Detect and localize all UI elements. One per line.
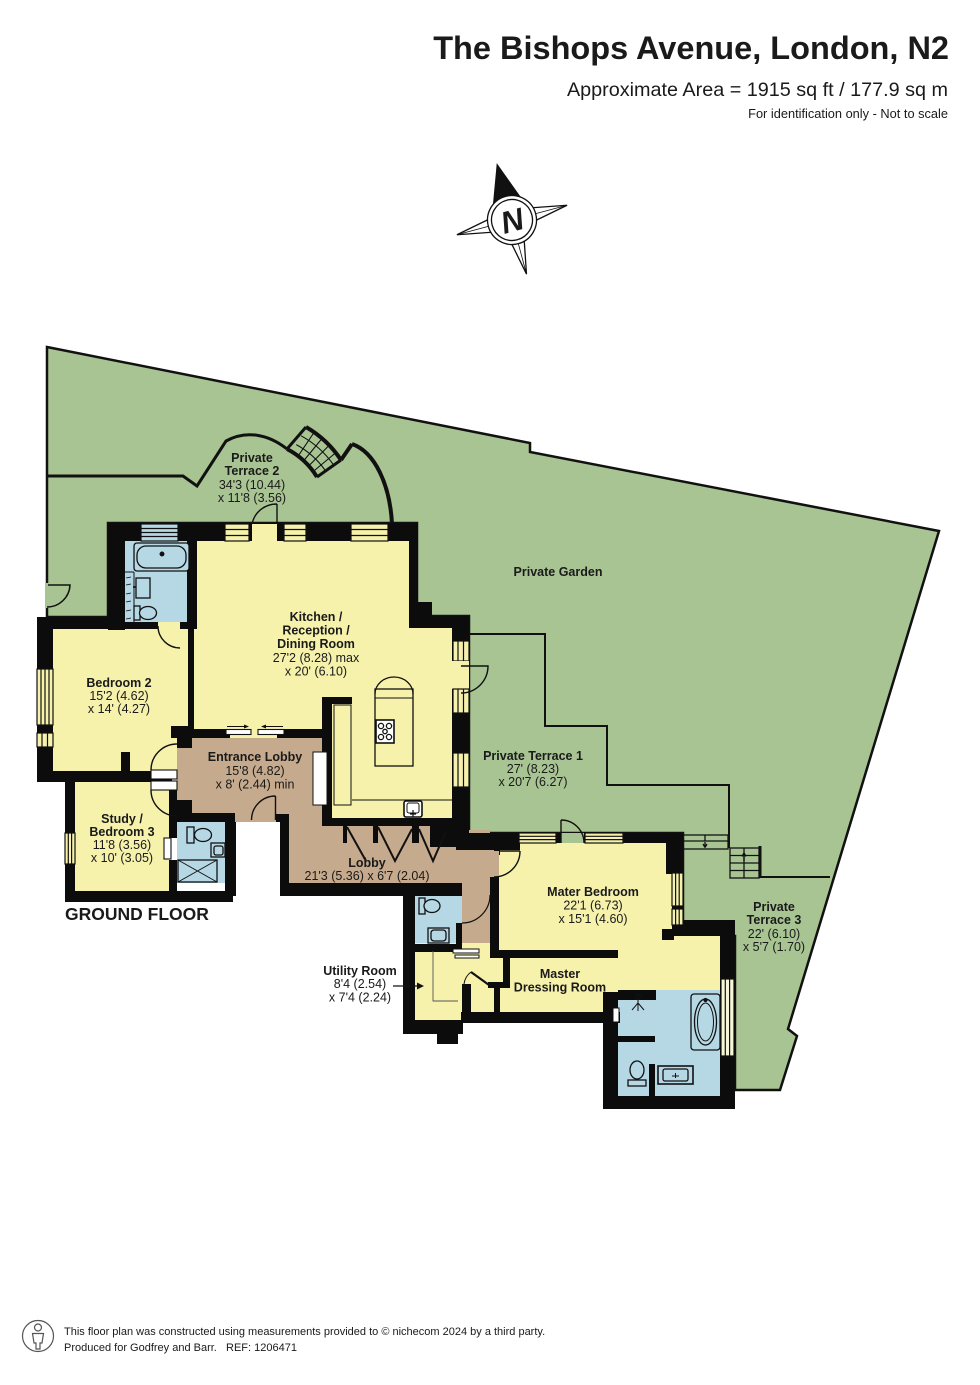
svg-text:Terrace 2: Terrace 2 (225, 464, 280, 478)
svg-text:22'1 (6.73): 22'1 (6.73) (563, 899, 622, 913)
svg-text:x 8' (2.44) min: x 8' (2.44) min (216, 778, 295, 792)
svg-text:Study /: Study / (101, 812, 143, 826)
svg-text:x 5'7 (1.70): x 5'7 (1.70) (743, 940, 805, 954)
svg-text:x 15'1 (4.60): x 15'1 (4.60) (558, 912, 627, 926)
svg-text:Kitchen /: Kitchen / (290, 610, 343, 624)
svg-text:For identification only - Not: For identification only - Not to scale (748, 106, 948, 121)
svg-text:27' (8.23): 27' (8.23) (507, 762, 559, 776)
svg-text:x 14' (4.27): x 14' (4.27) (88, 702, 150, 716)
svg-text:x 7'4 (2.24): x 7'4 (2.24) (329, 991, 391, 1005)
svg-text:Private Terrace 1: Private Terrace 1 (483, 749, 583, 763)
svg-text:x 11'8 (3.56): x 11'8 (3.56) (218, 491, 286, 505)
svg-text:This floor plan was constructe: This floor plan was constructed using me… (64, 1326, 545, 1338)
svg-text:27'2 (8.28) max: 27'2 (8.28) max (273, 651, 360, 665)
svg-text:21'3 (5.36) x 6'7 (2.04): 21'3 (5.36) x 6'7 (2.04) (305, 869, 430, 883)
svg-text:Utility Room: Utility Room (323, 964, 397, 978)
svg-text:The Bishops Avenue, London, N2: The Bishops Avenue, London, N2 (433, 30, 949, 66)
svg-text:Private: Private (753, 900, 795, 914)
svg-text:Entrance Lobby: Entrance Lobby (208, 750, 303, 764)
svg-text:Mater Bedroom: Mater Bedroom (547, 885, 639, 899)
svg-text:Bedroom 2: Bedroom 2 (86, 676, 151, 690)
svg-text:Produced for Godfrey and Barr.: Produced for Godfrey and Barr. REF: 1206… (64, 1342, 297, 1354)
svg-text:Approximate Area = 1915 sq ft: Approximate Area = 1915 sq ft / 177.9 sq… (567, 79, 948, 101)
svg-text:Master: Master (540, 967, 580, 981)
svg-text:Bedroom 3: Bedroom 3 (89, 825, 154, 839)
svg-text:Terrace 3: Terrace 3 (747, 913, 802, 927)
svg-text:8'4 (2.54): 8'4 (2.54) (334, 977, 386, 991)
svg-text:Private: Private (231, 451, 273, 465)
svg-text:Private Garden: Private Garden (514, 565, 603, 579)
svg-text:Reception /: Reception / (282, 624, 350, 638)
svg-text:34'3 (10.44): 34'3 (10.44) (219, 478, 285, 492)
svg-text:Dining Room: Dining Room (277, 637, 355, 651)
svg-text:22' (6.10): 22' (6.10) (748, 927, 800, 941)
svg-text:11'8 (3.56): 11'8 (3.56) (93, 838, 151, 852)
svg-text:GROUND FLOOR: GROUND FLOOR (65, 904, 209, 924)
svg-text:Dressing Room: Dressing Room (514, 981, 606, 995)
svg-text:15'2 (4.62): 15'2 (4.62) (89, 689, 148, 703)
svg-text:x 20'7 (6.27): x 20'7 (6.27) (498, 775, 567, 789)
svg-text:x 10' (3.05): x 10' (3.05) (91, 851, 153, 865)
svg-text:x 20' (6.10): x 20' (6.10) (285, 665, 347, 679)
svg-text:15'8 (4.82): 15'8 (4.82) (225, 764, 284, 778)
svg-text:Lobby: Lobby (348, 856, 386, 870)
